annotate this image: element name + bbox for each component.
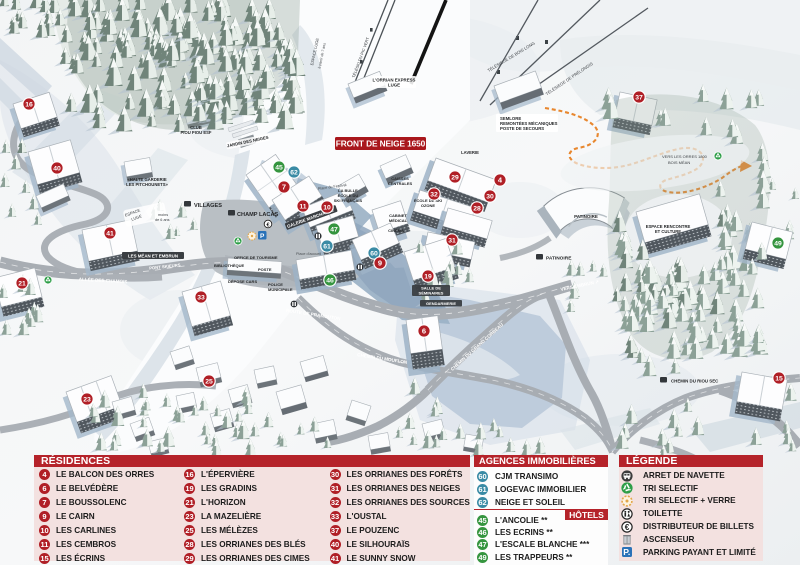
svg-text:LES MÉAN ET EMBRUN: LES MÉAN ET EMBRUN xyxy=(128,254,178,259)
svg-text:25: 25 xyxy=(205,378,213,385)
svg-text:37: 37 xyxy=(635,94,643,101)
svg-text:MÉDICAL: MÉDICAL xyxy=(389,218,408,223)
svg-text:28: 28 xyxy=(473,205,481,212)
svg-text:7: 7 xyxy=(282,182,286,191)
svg-text:SKI FRANÇAIS: SKI FRANÇAIS xyxy=(334,198,363,203)
svg-text:30: 30 xyxy=(486,193,494,200)
svg-text:62: 62 xyxy=(290,169,298,176)
svg-text:46: 46 xyxy=(326,277,334,284)
svg-text:OZONE: OZONE xyxy=(421,203,436,208)
svg-text:LUGE: LUGE xyxy=(388,83,400,88)
svg-text:11: 11 xyxy=(299,203,306,210)
svg-text:SÉMINAIRES: SÉMINAIRES xyxy=(419,291,444,296)
svg-text:60: 60 xyxy=(370,250,378,257)
svg-text:15: 15 xyxy=(775,375,783,382)
svg-text:de 6 ans: de 6 ans xyxy=(155,218,170,222)
svg-text:P: P xyxy=(260,233,265,240)
svg-text:P.: P. xyxy=(623,547,630,557)
svg-text:29: 29 xyxy=(451,174,459,181)
svg-text:31: 31 xyxy=(448,237,456,244)
svg-text:LES PITCHOUNETS»: LES PITCHOUNETS» xyxy=(126,182,168,187)
svg-text:moins: moins xyxy=(158,213,168,217)
svg-text:ET CULTURE: ET CULTURE xyxy=(655,229,681,234)
svg-text:VERS LES ORRES 1800: VERS LES ORRES 1800 xyxy=(662,154,708,159)
svg-text:9: 9 xyxy=(378,258,382,267)
svg-text:49: 49 xyxy=(774,240,782,247)
svg-text:VILLAGES: VILLAGES xyxy=(194,203,222,209)
svg-text:32: 32 xyxy=(430,191,438,198)
svg-text:MUNICIPALE: MUNICIPALE xyxy=(268,287,293,292)
svg-text:PATINOIRE: PATINOIRE xyxy=(574,214,598,219)
svg-text:€: € xyxy=(266,222,269,228)
svg-text:OFFICE DE TOURISME: OFFICE DE TOURISME xyxy=(234,255,278,260)
svg-text:CHEMIN DU RIOU SEC: CHEMIN DU RIOU SEC xyxy=(671,379,719,384)
svg-text:CINÉMA: CINÉMA xyxy=(388,228,404,233)
svg-text:23: 23 xyxy=(83,396,91,403)
svg-text:10: 10 xyxy=(323,204,331,211)
svg-text:6: 6 xyxy=(422,326,426,335)
svg-text:47: 47 xyxy=(330,226,338,233)
svg-text:POSTE DE SECOURS: POSTE DE SECOURS xyxy=(500,126,544,131)
svg-text:LAVERIE: LAVERIE xyxy=(461,150,479,155)
svg-text:33: 33 xyxy=(197,294,205,301)
svg-text:Place d'accueil: Place d'accueil xyxy=(296,252,321,256)
svg-text:41: 41 xyxy=(106,230,114,237)
svg-text:PATINOIRE: PATINOIRE xyxy=(546,256,572,262)
svg-text:40: 40 xyxy=(53,165,61,172)
svg-text:POSTE: POSTE xyxy=(258,267,272,272)
svg-text:61: 61 xyxy=(323,243,331,250)
svg-text:19: 19 xyxy=(424,273,432,280)
svg-text:45: 45 xyxy=(275,164,283,171)
svg-text:16: 16 xyxy=(25,101,33,108)
svg-text:BIBLIOTHÈQUE: BIBLIOTHÈQUE xyxy=(214,263,245,268)
svg-text:GENDARMERIE: GENDARMERIE xyxy=(426,301,456,306)
svg-text:21: 21 xyxy=(18,280,26,287)
svg-text:CHAMP LACAS: CHAMP LACAS xyxy=(237,212,278,218)
svg-text:DÉPOSE CARS: DÉPOSE CARS xyxy=(228,279,257,284)
svg-text:CENTRALES: CENTRALES xyxy=(388,181,413,186)
svg-text:FRONT DE NEIGE 1650: FRONT DE NEIGE 1650 xyxy=(336,139,426,149)
svg-text:€: € xyxy=(625,522,630,531)
svg-text:BOIS MÉAN: BOIS MÉAN xyxy=(668,160,690,165)
svg-text:PIOU PIOU ESF: PIOU PIOU ESF xyxy=(181,130,212,135)
